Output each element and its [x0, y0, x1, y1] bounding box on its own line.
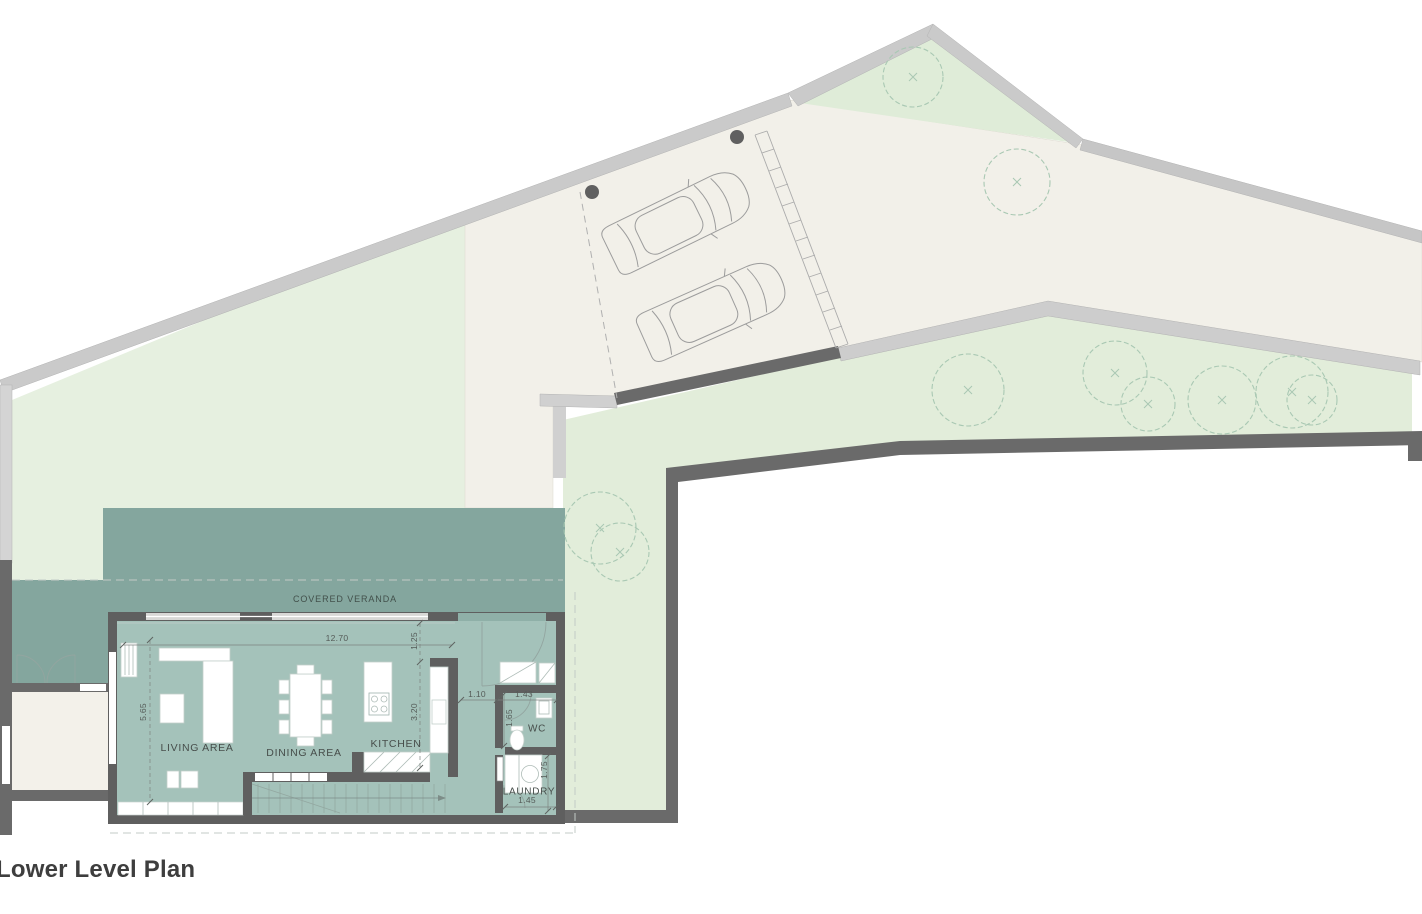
wall-west-window — [2, 726, 10, 784]
path-driveway-edge — [540, 394, 617, 408]
kitchen-wall — [448, 662, 458, 777]
courtyard — [12, 688, 108, 792]
room-label-dining-area: DINING AREA — [266, 747, 341, 759]
house-wall-east — [556, 612, 565, 824]
wall-cutout-hook — [1408, 445, 1422, 461]
dimension-living-depth: 5.65 — [138, 703, 148, 721]
dimension-laundry-width: 1.45 — [518, 795, 536, 805]
column-dot — [730, 130, 744, 144]
room-label-wc: WC — [528, 724, 546, 735]
dimension-veranda-offset: 1.25 — [409, 632, 419, 650]
toilet-icon — [510, 730, 524, 750]
floor-plan-page: COVERED VERANDA LIVING AREA DINING AREA … — [0, 0, 1422, 914]
dimension-living-width: 12.70 — [326, 633, 349, 643]
house-wall-south — [108, 815, 565, 824]
kitchen-island — [364, 662, 392, 722]
window-south-cells — [118, 802, 243, 815]
stove-icon — [369, 693, 389, 715]
dimension-kitchen-depth: 3.20 — [409, 703, 419, 721]
window-west — [109, 652, 116, 764]
room-label-living-area: LIVING AREA — [160, 742, 233, 754]
wall-south-east — [560, 810, 678, 823]
house — [108, 612, 565, 824]
veranda-side-deck — [12, 580, 108, 683]
room-label-kitchen: KITCHEN — [371, 738, 422, 750]
floor-plan-drawing — [0, 0, 1422, 914]
dimension-laundry-depth: 1.75 — [539, 761, 549, 779]
entry-door-opening — [458, 613, 546, 621]
wall-courtyard-south — [0, 790, 112, 801]
column-dot — [585, 185, 599, 199]
sink-icon — [432, 700, 446, 724]
plan-title: Lower Level Plan — [0, 856, 195, 884]
kitchen-wall-l2 — [352, 772, 430, 782]
veranda-label: COVERED VERANDA — [293, 594, 397, 604]
lawn-right-strip — [563, 316, 1412, 813]
dimension-wc-depth: 1.65 — [504, 709, 514, 727]
entry-closets — [500, 662, 555, 683]
laundry-shelf — [497, 757, 503, 781]
path-vertical — [553, 400, 566, 478]
wall-courtyard-north-window — [80, 684, 106, 691]
boundary-band-west — [0, 385, 12, 563]
dimension-wc-width: 1.43 — [515, 689, 533, 699]
wall-cutout-west — [666, 468, 678, 820]
dimension-hall-width: 1.10 — [468, 689, 486, 699]
